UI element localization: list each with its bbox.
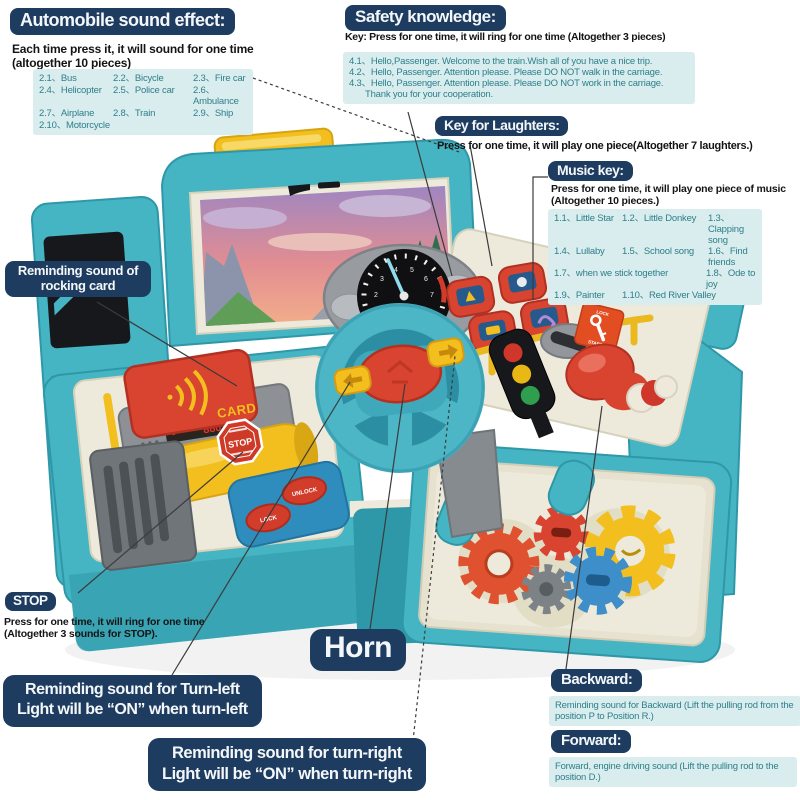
list-item: 1.9、Painter (554, 290, 622, 301)
horn-label: Horn (310, 629, 406, 671)
laughters-desc: Press for one time, it will play one pie… (437, 140, 797, 153)
music-desc: Press for one time, it will play one pie… (551, 183, 800, 208)
list-item: 1.7、when we stick together (554, 268, 706, 290)
list-item: 1.6、Find friends (708, 246, 756, 268)
turn-right-button (426, 337, 465, 368)
list-item: 4.2、Hello, Passenger. Attention please. … (349, 67, 689, 78)
stop-desc: Press for one time, it will ring for one… (4, 616, 232, 641)
turn-left-banner: Reminding sound for Turn-left Light will… (3, 675, 262, 727)
list-item: 4.3、Hello, Passenger. Attention please. … (349, 78, 689, 89)
list-item: Thank you for your cooperation. (349, 89, 689, 100)
list-item: 2.1、Bus (39, 73, 113, 84)
list-item: 2.7、Airplane (39, 108, 113, 119)
automobile-title: Automobile sound effect: (10, 8, 235, 35)
turn-right-banner: Reminding sound for turn-right Light wil… (148, 738, 426, 791)
svg-text:3: 3 (380, 276, 384, 283)
list-item: 2.5、Police car (113, 85, 193, 107)
safety-announcements: 4.1、Hello,Passenger. Welcome to the trai… (343, 52, 695, 104)
list-item: 1.3、Clapping song (708, 213, 756, 246)
list-item: 2.2、Bicycle (113, 73, 193, 84)
list-item: 1.10、Red River Valley (622, 290, 756, 301)
safety-key-line: Key: Press for one time, it will ring fo… (345, 31, 795, 43)
forward-desc: Forward, engine driving sound (Lift the … (549, 757, 797, 787)
forward-title: Forward: (551, 730, 631, 753)
music-title: Music key: (548, 161, 633, 181)
stop-title: STOP (5, 592, 56, 611)
turn-left-button (333, 365, 372, 396)
list-item: 2.8、Train (113, 108, 193, 119)
list-item: 2.6、Ambulance (193, 85, 247, 107)
svg-text:7: 7 (430, 292, 434, 299)
list-item: 1.4、Lullaby (554, 246, 622, 268)
list-item: 1.2、Little Donkey (622, 213, 708, 246)
laughters-title: Key for Laughters: (435, 116, 568, 136)
list-item: 2.10、Motorcycle (39, 120, 113, 131)
safety-title: Safety knowledge: (345, 5, 506, 31)
automobile-sound-list: 2.1、Bus 2.2、Bicycle 2.3、Fire car 2.4、Hel… (33, 69, 253, 135)
automobile-desc: Each time press it, it will sound for on… (12, 42, 264, 70)
list-item: 2.3、Fire car (193, 73, 247, 84)
product-infographic: 1 2 3 4 5 6 7 8 (0, 0, 800, 800)
svg-text:6: 6 (424, 276, 428, 283)
list-item: 1.8、Ode to joy (706, 268, 756, 290)
backward-title: Backward: (551, 669, 642, 692)
list-item: 2.4、Helicopter (39, 85, 113, 107)
list-item: 1.5、School song (622, 246, 708, 268)
list-item: 1.1、Little Star (554, 213, 622, 246)
music-list: 1.1、Little Star 1.2、Little Donkey 1.3、Cl… (548, 209, 762, 305)
rocking-card-label: Reminding sound of rocking card (5, 261, 151, 297)
list-item: 2.9、Ship (193, 108, 247, 119)
svg-text:2: 2 (374, 292, 378, 299)
list-item: 4.1、Hello,Passenger. Welcome to the trai… (349, 56, 689, 67)
svg-text:5: 5 (410, 267, 414, 274)
backward-desc: Reminding sound for Backward (Lift the p… (549, 696, 800, 726)
